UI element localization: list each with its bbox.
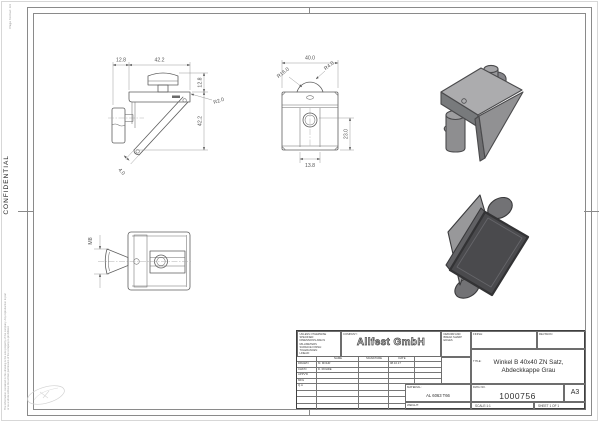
side-flange	[112, 108, 125, 143]
tolerance-notes-cell: UNLESS OTHERWISE SPECIFIED: DIMENSIONS A…	[297, 331, 341, 357]
approval-table-lower: Q.A	[297, 384, 405, 410]
dim-front-width: 40.0	[305, 56, 315, 62]
side-strut-edge	[134, 97, 183, 150]
frame-tick-bottom	[309, 409, 310, 416]
side-hatch-mark	[172, 96, 180, 99]
col-header-signature: SIGNATURE	[359, 357, 389, 361]
col-header-date: DATE	[389, 357, 415, 361]
dim-side-right: 42.2	[198, 116, 204, 126]
side-top-plate	[129, 92, 190, 102]
weight-cell: WEIGHT:	[405, 402, 471, 410]
row-date	[389, 368, 415, 372]
deburr-note: DEBURR AND BREAK SHARP EDGES	[442, 332, 470, 343]
revision-label: REVISION	[539, 333, 552, 336]
corner-scribble	[20, 380, 72, 410]
scale-value: SCALE:1:1	[475, 405, 491, 409]
row-label: APPV'D	[297, 373, 317, 377]
dwg-label: DWG NO.	[473, 386, 486, 389]
view-top: M8	[78, 213, 203, 308]
dim-side-right-top: 12.8	[198, 77, 204, 87]
row-label: MFG	[297, 379, 317, 383]
row-name: M. MOHR	[317, 362, 359, 366]
title-cell: TITLE: Winkel B 40x40 ZN Satz, Abdeckkap…	[471, 349, 586, 384]
top-left-panel	[134, 235, 147, 287]
dim-front-radius-large: R16.0	[276, 67, 291, 80]
front-dome	[297, 82, 323, 92]
material-value: AL 6063 T66	[406, 393, 470, 398]
title-block: UNLESS OTHERWISE SPECIFIED: DIMENSIONS A…	[296, 330, 585, 409]
render-cap-iso	[443, 188, 538, 313]
weight-label: WEIGHT:	[407, 404, 419, 407]
row-name: D. ROHDE	[317, 368, 359, 372]
property-note: The information contained in this drawin…	[4, 292, 10, 410]
company-label: COMPANY:	[343, 333, 358, 336]
drawing-sheet: { "sheet": { "confidential": "CONFIDENTI…	[0, 0, 600, 423]
row-date: 08.10.17	[389, 362, 415, 366]
dwg-no-cell: DWG NO. 1000756	[471, 384, 564, 402]
confidential-label: CONFIDENTIAL	[3, 155, 10, 215]
page-format-note: Page format: A3	[8, 4, 12, 29]
row-label: CHK'D	[297, 368, 317, 372]
frame-tick-left	[18, 211, 34, 212]
scale-cell: SCALE:1:1	[471, 402, 534, 410]
material-cell: MATERIAL: AL 6063 T66	[405, 384, 471, 402]
part-title-line1: Winkel B 40x40 ZN Satz,	[472, 359, 585, 367]
view-front: 40.0 R16.0 R4.0 23.0 13.8	[263, 46, 408, 181]
dim-front-bottom: 13.8	[305, 163, 315, 169]
dim-front-radius-small: R4.0	[323, 60, 335, 72]
side-bolt-head	[148, 73, 178, 85]
company-cell: COMPANY: Allfest GmbH	[341, 331, 441, 357]
paper-size-cell: A3	[564, 384, 586, 402]
frame-tick-right	[584, 211, 599, 212]
finish-label: FINISH:	[473, 333, 483, 336]
col-header-name: NAME	[317, 357, 359, 361]
revision-cell: REVISION	[537, 331, 586, 349]
row-label: DRAWN	[297, 362, 317, 366]
part-title-line2: Abdeckkappe Grau	[472, 367, 585, 375]
bracket-boss	[446, 115, 465, 152]
spare-cell	[441, 357, 471, 384]
dim-side-top: 42.2	[154, 58, 164, 64]
paper-size: A3	[565, 389, 585, 396]
side-bolt-stem	[158, 85, 168, 92]
dim-top-thread: M8	[88, 237, 94, 244]
view-side: 12.8 42.2 12.8 42.2 R2.0 4.0	[88, 48, 238, 188]
dim-side-top-left: 12.8	[116, 58, 126, 64]
top-body	[128, 232, 190, 290]
dwg-number: 1000756	[472, 391, 563, 401]
title-label: TITLE:	[473, 360, 481, 363]
finish-cell: FINISH:	[471, 331, 537, 349]
approval-table-upper: NAME SIGNATURE DATE DRAWN M. MOHR 08.10.…	[297, 357, 441, 384]
row-label: Q.A	[297, 384, 317, 390]
dim-side-radius: R2.0	[213, 97, 225, 106]
sheet-value: SHEET 1 OF 1	[538, 405, 559, 409]
material-label: MATERIAL:	[407, 386, 422, 389]
render-bracket-iso	[437, 55, 537, 170]
sheet-cell: SHEET 1 OF 1	[534, 402, 586, 410]
frame-tick-top	[309, 7, 310, 14]
dim-side-thickness: 4.0	[117, 167, 126, 176]
company-logo: Allfest GmbH	[342, 337, 440, 348]
deburr-cell: DEBURR AND BREAK SHARP EDGES	[441, 331, 471, 357]
dim-front-height: 23.0	[344, 129, 350, 139]
